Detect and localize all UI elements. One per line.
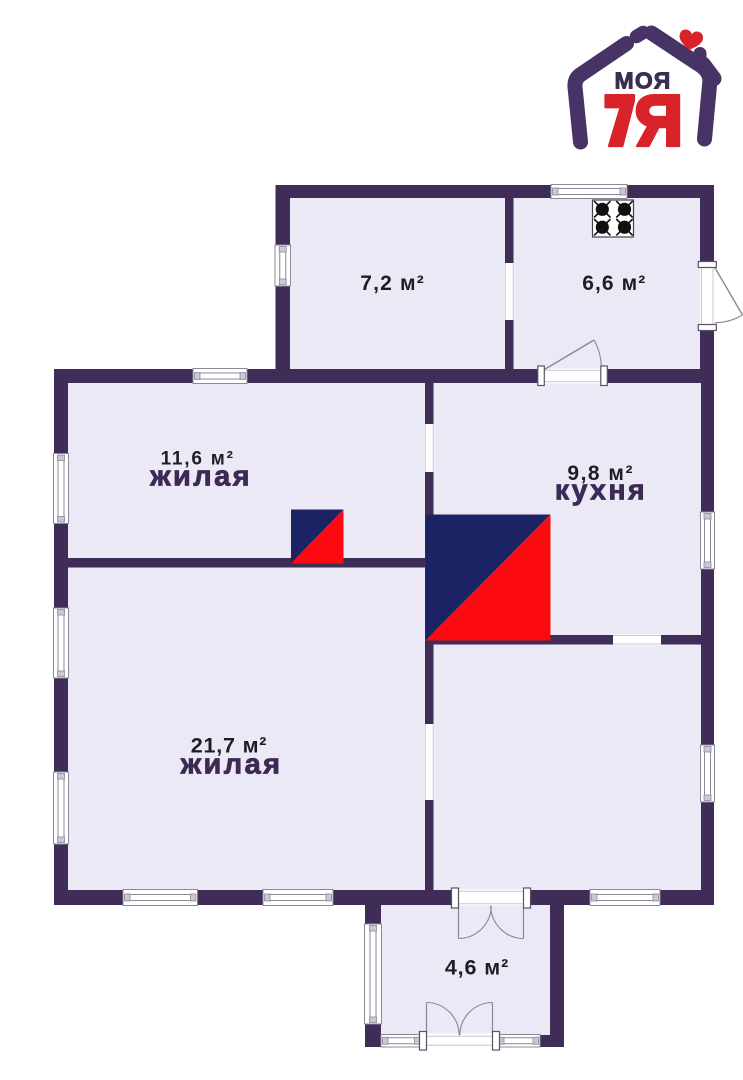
- svg-text:кухня: кухня: [555, 475, 647, 507]
- svg-text:жилая: жилая: [149, 461, 252, 493]
- svg-text:4,6 м²: 4,6 м²: [445, 956, 509, 980]
- svg-text:6,6 м²: 6,6 м²: [582, 272, 646, 295]
- svg-text:7,2 м²: 7,2 м²: [360, 272, 425, 295]
- svg-text:жилая: жилая: [180, 749, 283, 781]
- svg-text:МОЯ: МОЯ: [615, 68, 672, 94]
